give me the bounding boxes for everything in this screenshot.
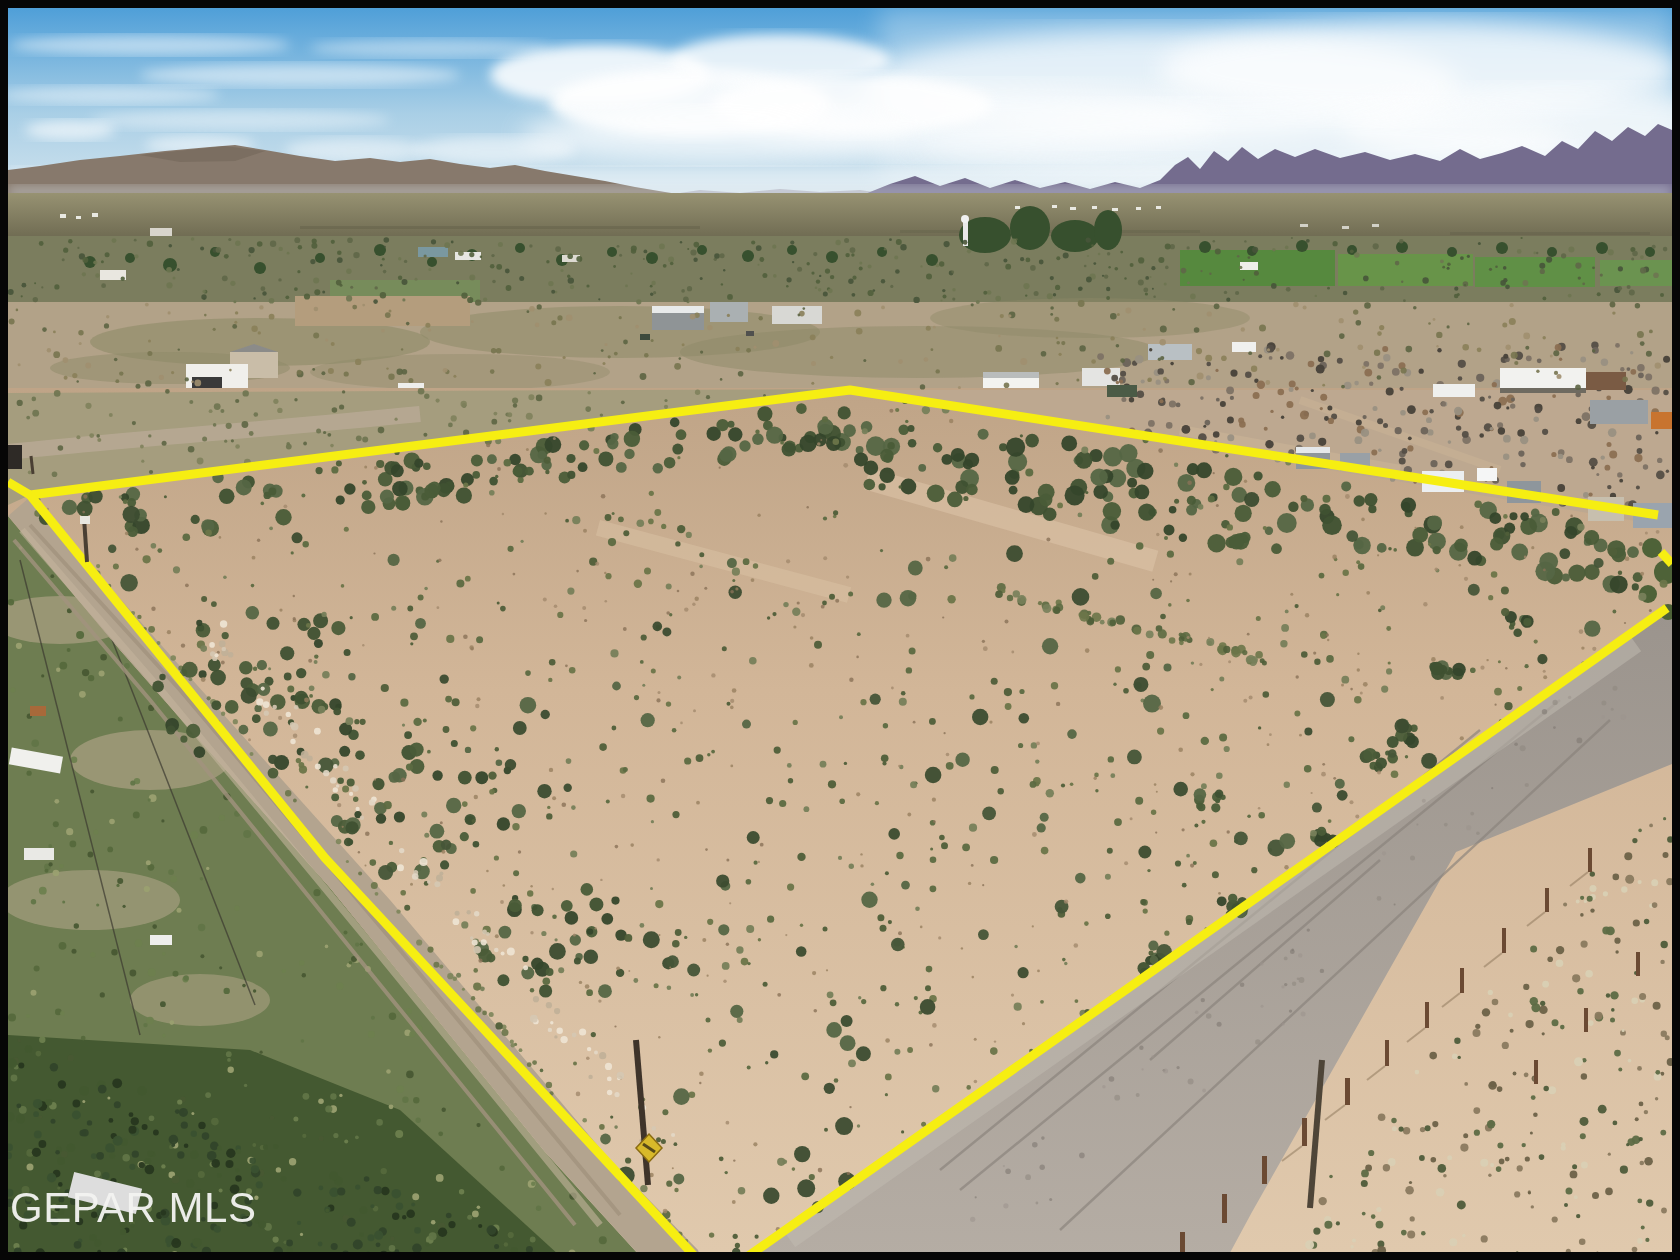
sand-speckle bbox=[1326, 633, 1329, 636]
scrub-dot bbox=[1615, 950, 1618, 953]
shrub bbox=[966, 1085, 971, 1090]
hedge-bush bbox=[1354, 495, 1365, 506]
sand-speckle bbox=[621, 794, 625, 798]
bush bbox=[1279, 833, 1295, 849]
brush-dot bbox=[256, 1181, 263, 1188]
brush-dot bbox=[145, 1165, 155, 1175]
scrub-dot bbox=[313, 278, 319, 284]
shrub bbox=[342, 786, 349, 793]
sand-speckle bbox=[814, 1009, 818, 1013]
shrub bbox=[463, 483, 468, 488]
scrub-dot bbox=[83, 257, 89, 263]
shrub bbox=[758, 938, 761, 941]
bush bbox=[612, 682, 621, 691]
brush-dot bbox=[325, 1209, 329, 1213]
scrub-dot bbox=[314, 289, 320, 295]
hedge-bush bbox=[728, 427, 742, 441]
road-speckle bbox=[1240, 982, 1245, 987]
scrub-dot bbox=[1003, 259, 1007, 263]
bush bbox=[331, 793, 339, 801]
debris bbox=[1206, 362, 1211, 367]
scrub-dot bbox=[62, 258, 65, 261]
sand-speckle bbox=[601, 494, 606, 499]
sand-speckle bbox=[1440, 696, 1444, 700]
yard-dot bbox=[467, 1215, 472, 1220]
shrub bbox=[157, 548, 162, 553]
yard-dot bbox=[386, 1069, 391, 1074]
bush bbox=[584, 950, 599, 965]
shrub bbox=[1263, 691, 1270, 698]
pickup-truck bbox=[1477, 468, 1497, 481]
brush-dot bbox=[355, 1185, 360, 1190]
bush bbox=[1421, 753, 1437, 769]
road-speckle bbox=[1525, 783, 1529, 787]
shrub bbox=[606, 800, 610, 804]
shed-roof bbox=[1296, 447, 1330, 453]
hedge-bush bbox=[1018, 496, 1035, 513]
scrub-dot bbox=[881, 306, 885, 310]
bush bbox=[346, 821, 359, 834]
sand-speckle bbox=[585, 984, 590, 989]
shrub bbox=[489, 789, 495, 795]
yard-dot bbox=[72, 949, 77, 954]
shrub bbox=[861, 999, 866, 1004]
hedge-bush bbox=[1254, 471, 1263, 480]
scrub-dot bbox=[89, 433, 94, 438]
sand-speckle bbox=[1267, 743, 1270, 746]
sand-speckle bbox=[898, 765, 901, 768]
gravel-dot bbox=[264, 711, 269, 716]
yard-dot bbox=[381, 1168, 387, 1174]
road-speckle bbox=[1201, 998, 1205, 1002]
sand-speckle bbox=[1216, 504, 1219, 507]
shrub bbox=[548, 678, 552, 682]
shrub bbox=[350, 616, 353, 619]
shrub bbox=[610, 1116, 613, 1119]
sand-speckle bbox=[777, 993, 781, 997]
yard-dot bbox=[325, 945, 329, 949]
shrub bbox=[634, 695, 639, 700]
yard-dot bbox=[162, 952, 165, 955]
sand-speckle bbox=[657, 858, 660, 861]
sand-speckle bbox=[860, 864, 863, 867]
shrub bbox=[1638, 593, 1646, 601]
shrub bbox=[1540, 517, 1546, 523]
grass-dot bbox=[233, 719, 238, 724]
sand-speckle bbox=[704, 587, 707, 590]
scrub-dot bbox=[213, 423, 217, 427]
shrub bbox=[650, 887, 653, 890]
shrub bbox=[969, 694, 974, 699]
sand-speckle bbox=[1085, 648, 1090, 653]
shrub bbox=[800, 924, 803, 927]
debris bbox=[1596, 473, 1599, 476]
hedge-bush bbox=[1009, 486, 1018, 495]
grass-dot bbox=[375, 892, 379, 896]
yard-dot bbox=[234, 906, 239, 911]
hedge-bush bbox=[1490, 537, 1503, 550]
shrub bbox=[792, 1167, 796, 1171]
bush bbox=[564, 784, 572, 792]
scrub-dot bbox=[836, 240, 841, 245]
scrub-dot bbox=[1489, 268, 1492, 271]
scrub-dot bbox=[1361, 1180, 1368, 1187]
hedge-bush bbox=[1006, 438, 1025, 457]
scrub-dot bbox=[1632, 251, 1638, 257]
scrub-dot bbox=[1488, 1081, 1497, 1090]
yard-dot bbox=[293, 1116, 298, 1121]
debris bbox=[1230, 370, 1237, 377]
sand-speckle bbox=[856, 792, 860, 796]
road-speckle bbox=[1601, 715, 1605, 719]
scrub-dot bbox=[1497, 1086, 1503, 1092]
bush bbox=[532, 904, 544, 916]
grass-dot bbox=[462, 988, 465, 991]
scrub-dot bbox=[311, 243, 317, 249]
shrub bbox=[885, 871, 889, 875]
scrub-dot bbox=[548, 281, 553, 286]
scrub-dot bbox=[1488, 1174, 1491, 1177]
shrub bbox=[1020, 597, 1024, 601]
shrub bbox=[875, 801, 879, 805]
scrub-dot bbox=[635, 325, 639, 329]
scrub-dot bbox=[1041, 351, 1047, 357]
scrub-dot bbox=[1641, 1226, 1645, 1230]
hedge-bush bbox=[999, 443, 1007, 451]
scrub-dot bbox=[605, 343, 608, 346]
scrub-dot bbox=[491, 419, 497, 425]
canopy-shadow bbox=[1500, 388, 1586, 393]
hedge-bush bbox=[1179, 534, 1187, 542]
scrub-dot bbox=[1138, 279, 1144, 285]
shrub bbox=[1391, 771, 1399, 779]
scrub-dot bbox=[105, 252, 110, 257]
sand-speckle bbox=[1249, 695, 1253, 699]
sand-speckle bbox=[730, 699, 734, 703]
scrub-dot bbox=[828, 288, 833, 293]
scrub-dot bbox=[248, 254, 251, 257]
gravel-dot bbox=[330, 777, 336, 783]
sand-speckle bbox=[486, 870, 489, 873]
shrub bbox=[788, 778, 793, 783]
bush bbox=[666, 955, 679, 968]
grass-dot bbox=[170, 655, 176, 661]
shrub bbox=[1498, 660, 1501, 663]
scrub-dot bbox=[859, 266, 863, 270]
sand-speckle bbox=[583, 529, 587, 533]
debris bbox=[1337, 358, 1343, 364]
grass-dot bbox=[293, 799, 297, 803]
scrub-dot bbox=[1606, 993, 1610, 997]
debris bbox=[1619, 479, 1623, 483]
shrub bbox=[732, 568, 740, 576]
shrub bbox=[543, 977, 551, 985]
scrub-dot bbox=[1333, 241, 1338, 246]
sand-speckle bbox=[1423, 602, 1427, 606]
sand-speckle bbox=[530, 931, 533, 934]
sand-speckle bbox=[1321, 772, 1326, 777]
scrub-dot bbox=[34, 282, 36, 284]
debris bbox=[1121, 397, 1126, 402]
yard-dot bbox=[36, 1051, 42, 1057]
shrub bbox=[1157, 728, 1164, 735]
yard-dot bbox=[429, 1232, 437, 1240]
bush bbox=[1042, 638, 1058, 654]
yard-dot bbox=[130, 780, 135, 785]
scrub-dot bbox=[1618, 1068, 1622, 1072]
sand-speckle bbox=[949, 419, 953, 423]
scrub-dot bbox=[1653, 1002, 1661, 1010]
scrub-dot bbox=[663, 264, 667, 268]
shrub bbox=[605, 573, 611, 579]
scrub-dot bbox=[1248, 256, 1251, 259]
yard-dot bbox=[477, 1205, 481, 1209]
debris bbox=[1506, 406, 1509, 409]
scrub-dot bbox=[881, 279, 885, 283]
shrub bbox=[793, 720, 798, 725]
debris bbox=[1395, 427, 1402, 434]
shrub bbox=[783, 1160, 788, 1165]
scrub-dot bbox=[1580, 896, 1584, 900]
bush bbox=[376, 813, 386, 823]
shrub bbox=[839, 798, 845, 804]
road-speckle bbox=[1377, 896, 1382, 901]
shrub bbox=[223, 575, 227, 579]
brush-dot bbox=[58, 1080, 66, 1088]
bush bbox=[687, 964, 700, 977]
scrub-dot bbox=[1523, 984, 1529, 990]
bush bbox=[292, 532, 303, 543]
sand-speckle bbox=[974, 1080, 978, 1084]
scrub-dot bbox=[1490, 1163, 1494, 1167]
scrub-dot bbox=[189, 400, 193, 404]
scrub-dot bbox=[1181, 268, 1187, 274]
brush-dot bbox=[331, 1243, 338, 1250]
bush bbox=[955, 753, 969, 767]
yard-dot bbox=[39, 887, 47, 895]
scrub-dot bbox=[1407, 1231, 1415, 1239]
shrub bbox=[1280, 640, 1287, 647]
brush-dot bbox=[39, 1140, 47, 1148]
yard-dot bbox=[302, 973, 306, 977]
brush-dot bbox=[7, 1058, 17, 1068]
debris bbox=[1286, 401, 1293, 408]
shrub bbox=[410, 632, 418, 640]
debris bbox=[1205, 420, 1211, 426]
gravel-dot bbox=[617, 1072, 625, 1080]
scrub-dot bbox=[78, 330, 83, 335]
shrub bbox=[990, 1047, 998, 1055]
shrub bbox=[1227, 524, 1233, 530]
sand-speckle bbox=[1366, 591, 1370, 595]
scrub-dot bbox=[1514, 361, 1518, 365]
debris bbox=[1119, 380, 1123, 384]
shrub bbox=[648, 519, 654, 525]
bush bbox=[925, 767, 942, 784]
scrub-dot bbox=[813, 252, 817, 256]
scrub-dot bbox=[1637, 1238, 1643, 1244]
veg-dot bbox=[1246, 657, 1252, 663]
scrub-dot bbox=[1561, 1142, 1566, 1147]
scrub-dot bbox=[567, 253, 573, 259]
grass-dot bbox=[396, 909, 400, 913]
bush bbox=[891, 938, 905, 952]
sand-speckle bbox=[920, 926, 923, 929]
sand-speckle bbox=[358, 851, 360, 853]
scrub-dot bbox=[845, 253, 849, 257]
hedge-bush bbox=[908, 425, 915, 432]
scrub-dot bbox=[931, 348, 934, 351]
scrub-dot bbox=[1110, 336, 1114, 340]
sand-speckle bbox=[821, 605, 825, 609]
shrub bbox=[1081, 447, 1088, 454]
brush-dot bbox=[113, 1136, 123, 1146]
road-speckle bbox=[1577, 738, 1583, 744]
scrub-dot bbox=[461, 292, 467, 298]
gravel-dot bbox=[294, 705, 299, 710]
debris bbox=[1116, 381, 1119, 384]
scrub-dot bbox=[52, 472, 58, 478]
debris bbox=[1295, 387, 1299, 391]
bush bbox=[1067, 729, 1077, 739]
shrub bbox=[612, 726, 617, 731]
debris bbox=[1638, 372, 1644, 378]
scrub-dot bbox=[1145, 276, 1149, 280]
house bbox=[150, 228, 172, 236]
gravel-dot bbox=[301, 751, 309, 759]
scrub-dot bbox=[1495, 266, 1498, 269]
shrub bbox=[708, 1048, 712, 1052]
sand-speckle bbox=[185, 583, 189, 587]
scrub-dot bbox=[294, 237, 300, 243]
scrub-dot bbox=[1467, 323, 1470, 326]
bush bbox=[1322, 837, 1327, 842]
sand-speckle bbox=[826, 969, 828, 971]
scrub-dot bbox=[926, 326, 931, 331]
scrub-dot bbox=[380, 264, 382, 266]
scrub-dot bbox=[1143, 288, 1148, 293]
sand-speckle bbox=[579, 981, 582, 984]
scrub-dot bbox=[1165, 266, 1169, 270]
scrub-dot bbox=[1324, 1221, 1332, 1229]
bush bbox=[1317, 827, 1326, 836]
scrub-dot bbox=[1536, 252, 1538, 254]
scrub-dot bbox=[194, 380, 201, 387]
sand-speckle bbox=[584, 619, 587, 622]
scrub-dot bbox=[1631, 997, 1638, 1004]
debris bbox=[1371, 449, 1377, 455]
brush-dot bbox=[191, 1131, 197, 1137]
shrub bbox=[895, 1002, 899, 1006]
scrub-dot bbox=[894, 255, 898, 259]
sand-speckle bbox=[181, 643, 185, 647]
scrub-dot bbox=[1405, 1186, 1414, 1195]
debris bbox=[1308, 361, 1315, 368]
road-speckle bbox=[1284, 957, 1288, 961]
scrub-dot bbox=[714, 253, 720, 259]
veg-dot bbox=[1223, 646, 1230, 653]
brush-dot bbox=[494, 1244, 499, 1249]
scrub-dot bbox=[1421, 1231, 1426, 1236]
scrub-dot bbox=[1025, 294, 1027, 296]
bush bbox=[473, 841, 480, 848]
shrub bbox=[944, 565, 948, 569]
scrub-dot bbox=[1197, 373, 1204, 380]
yard-dot bbox=[198, 1171, 205, 1178]
scrub-dot bbox=[1055, 285, 1060, 290]
sand-speckle bbox=[440, 821, 443, 824]
scrub-dot bbox=[1401, 1230, 1407, 1236]
scrub-dot bbox=[1368, 1150, 1374, 1156]
scrub-dot bbox=[490, 369, 495, 374]
scrub-dot bbox=[1339, 333, 1345, 339]
shrub bbox=[1534, 640, 1538, 644]
brush-dot bbox=[89, 1234, 96, 1241]
shrub bbox=[747, 962, 750, 965]
sand-speckle bbox=[1182, 828, 1185, 831]
shrub bbox=[1078, 513, 1083, 518]
yard-dot bbox=[161, 819, 164, 822]
scrub-dot bbox=[1150, 276, 1152, 278]
scrub-dot bbox=[461, 401, 467, 407]
bush bbox=[600, 1134, 611, 1145]
bush bbox=[394, 811, 405, 822]
road-speckle bbox=[1151, 1055, 1154, 1058]
debris bbox=[1607, 442, 1612, 447]
sand-speckle bbox=[989, 721, 992, 724]
brush-dot bbox=[139, 1162, 145, 1168]
scrub-dot bbox=[687, 286, 692, 291]
hedge-bush bbox=[1427, 515, 1442, 530]
grass-dot bbox=[416, 939, 422, 945]
scrub-dot bbox=[1241, 327, 1245, 331]
brush-dot bbox=[376, 1242, 381, 1247]
scrub-dot bbox=[1187, 246, 1190, 249]
yard-dot bbox=[355, 943, 359, 947]
scrub-dot bbox=[491, 254, 494, 257]
yard-dot bbox=[390, 1237, 394, 1241]
scrub-dot bbox=[924, 357, 929, 362]
debris bbox=[1454, 407, 1462, 415]
scrub-dot bbox=[693, 258, 697, 262]
scrub-dot bbox=[1505, 284, 1510, 289]
scrub-dot bbox=[269, 314, 275, 320]
scrub-dot bbox=[1548, 1086, 1556, 1094]
shrub bbox=[858, 996, 861, 999]
scrub-dot bbox=[1259, 324, 1266, 331]
shrub bbox=[1285, 610, 1289, 614]
debris bbox=[1238, 417, 1244, 423]
shrub bbox=[268, 667, 271, 670]
bush bbox=[1006, 545, 1023, 562]
scrub-dot bbox=[242, 421, 249, 428]
scrub-dot bbox=[1517, 1165, 1523, 1171]
scrub-dot bbox=[557, 315, 562, 320]
road-speckle bbox=[1601, 701, 1606, 706]
sand-speckle bbox=[284, 504, 288, 508]
gravel-dot bbox=[550, 1021, 553, 1024]
hedge-bush bbox=[1564, 526, 1577, 539]
sand-speckle bbox=[573, 933, 576, 936]
hedge-bush bbox=[1235, 505, 1252, 522]
scrub-dot bbox=[353, 252, 359, 258]
brush-dot bbox=[16, 1115, 25, 1124]
cloud-streak bbox=[0, 86, 220, 104]
scrub-dot bbox=[202, 290, 205, 293]
scrub-dot bbox=[625, 285, 628, 288]
shrub bbox=[885, 1093, 888, 1096]
scrub-dot bbox=[1056, 337, 1059, 340]
